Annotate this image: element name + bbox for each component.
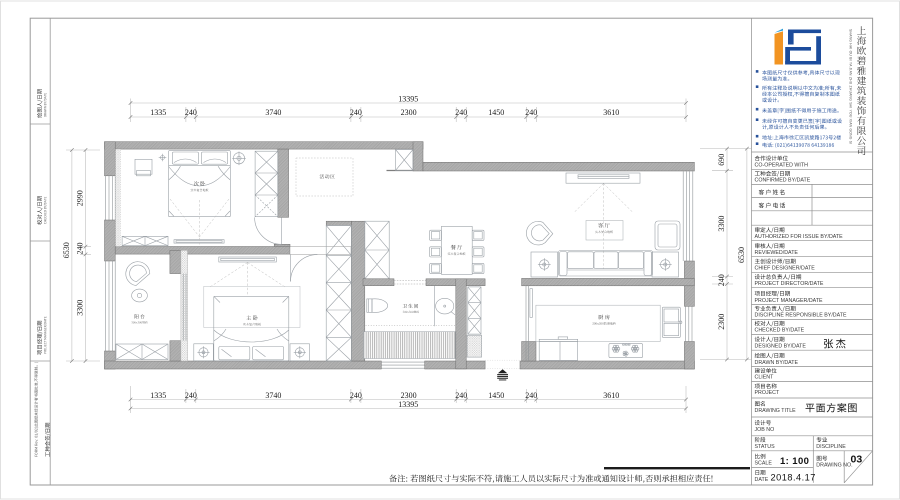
svg-text:DISCIPLINE RESPONSIBLE BY/DATE: DISCIPLINE RESPONSIBLE BY/DATE xyxy=(755,313,848,319)
svg-text:3300: 3300 xyxy=(76,300,85,316)
svg-text:PROJECT: PROJECT xyxy=(755,390,780,396)
svg-text:2300: 2300 xyxy=(717,314,726,330)
svg-text:DRAWING NO.: DRAWING NO. xyxy=(816,463,852,469)
svg-text:1335: 1335 xyxy=(150,391,166,400)
svg-text:CONFIRMED BY/DATE: CONFIRMED BY/DATE xyxy=(755,178,811,184)
svg-text:CHIEF DESIGNER/DATE: CHIEF DESIGNER/DATE xyxy=(755,266,816,272)
svg-text:240: 240 xyxy=(76,243,85,255)
svg-text:2018.4.17: 2018.4.17 xyxy=(771,472,816,482)
svg-text:SHANG HAI OU BI YA JIAN ZHU ZH: SHANG HAI OU BI YA JIAN ZHU ZHUANG SHI Y… xyxy=(849,29,853,144)
svg-text:JOB NO: JOB NO xyxy=(755,427,775,433)
svg-text:DRAWN BY/DATE: DRAWN BY/DATE xyxy=(755,360,799,366)
svg-text:CLIENT: CLIENT xyxy=(755,375,775,381)
svg-text:3610: 3610 xyxy=(603,108,619,117)
svg-text:03: 03 xyxy=(851,454,863,466)
svg-text:3300: 3300 xyxy=(717,216,726,232)
svg-text:1450: 1450 xyxy=(488,108,504,117)
svg-text:AUTHORIZED FOR ISSUE BY/DATE: AUTHORIZED FOR ISSUE BY/DATE xyxy=(755,234,844,240)
svg-text:240: 240 xyxy=(350,108,362,117)
svg-text:1: 100: 1: 100 xyxy=(780,456,809,467)
svg-text:DESIGNED BY/DATE: DESIGNED BY/DATE xyxy=(755,343,807,349)
svg-text:PROJECT DIRECTOR/DATE: PROJECT DIRECTOR/DATE xyxy=(755,281,824,287)
svg-text:DRAWING TITLE: DRAWING TITLE xyxy=(755,408,797,414)
svg-text:2990: 2990 xyxy=(76,190,85,206)
svg-text:240: 240 xyxy=(455,391,467,400)
svg-text:240: 240 xyxy=(525,391,537,400)
svg-text:6530: 6530 xyxy=(62,242,71,258)
svg-text:240: 240 xyxy=(185,391,197,400)
svg-text:240: 240 xyxy=(455,108,467,117)
svg-text:13395: 13395 xyxy=(398,400,418,409)
svg-text:DISCIPLINE: DISCIPLINE xyxy=(816,444,846,450)
svg-text:PROJECT MANAGER/DATE: PROJECT MANAGER/DATE xyxy=(755,298,824,304)
svg-text:1335: 1335 xyxy=(150,108,166,117)
svg-text:240: 240 xyxy=(185,108,197,117)
svg-text:STATUS: STATUS xyxy=(755,444,776,450)
svg-text:CHECKED BY/DATE: CHECKED BY/DATE xyxy=(755,328,805,334)
svg-text:1450: 1450 xyxy=(488,391,504,400)
svg-text:3740: 3740 xyxy=(265,391,281,400)
svg-text:SCALE: SCALE xyxy=(755,461,773,467)
svg-text:DATE: DATE xyxy=(755,477,769,483)
svg-text:240: 240 xyxy=(717,274,726,286)
svg-text:240: 240 xyxy=(350,391,362,400)
svg-text:3740: 3740 xyxy=(265,108,281,117)
svg-text:CO-OPERATED WITH: CO-OPERATED WITH xyxy=(755,163,809,169)
svg-text:2300: 2300 xyxy=(401,391,417,400)
svg-text:2300: 2300 xyxy=(401,108,417,117)
svg-text:13395: 13395 xyxy=(398,95,418,104)
svg-text:6530: 6530 xyxy=(737,247,746,263)
svg-text:REVIEWED/DATE: REVIEWED/DATE xyxy=(755,250,799,256)
svg-text:3610: 3610 xyxy=(603,391,619,400)
svg-text:690: 690 xyxy=(717,154,726,166)
svg-text:240: 240 xyxy=(525,108,537,117)
